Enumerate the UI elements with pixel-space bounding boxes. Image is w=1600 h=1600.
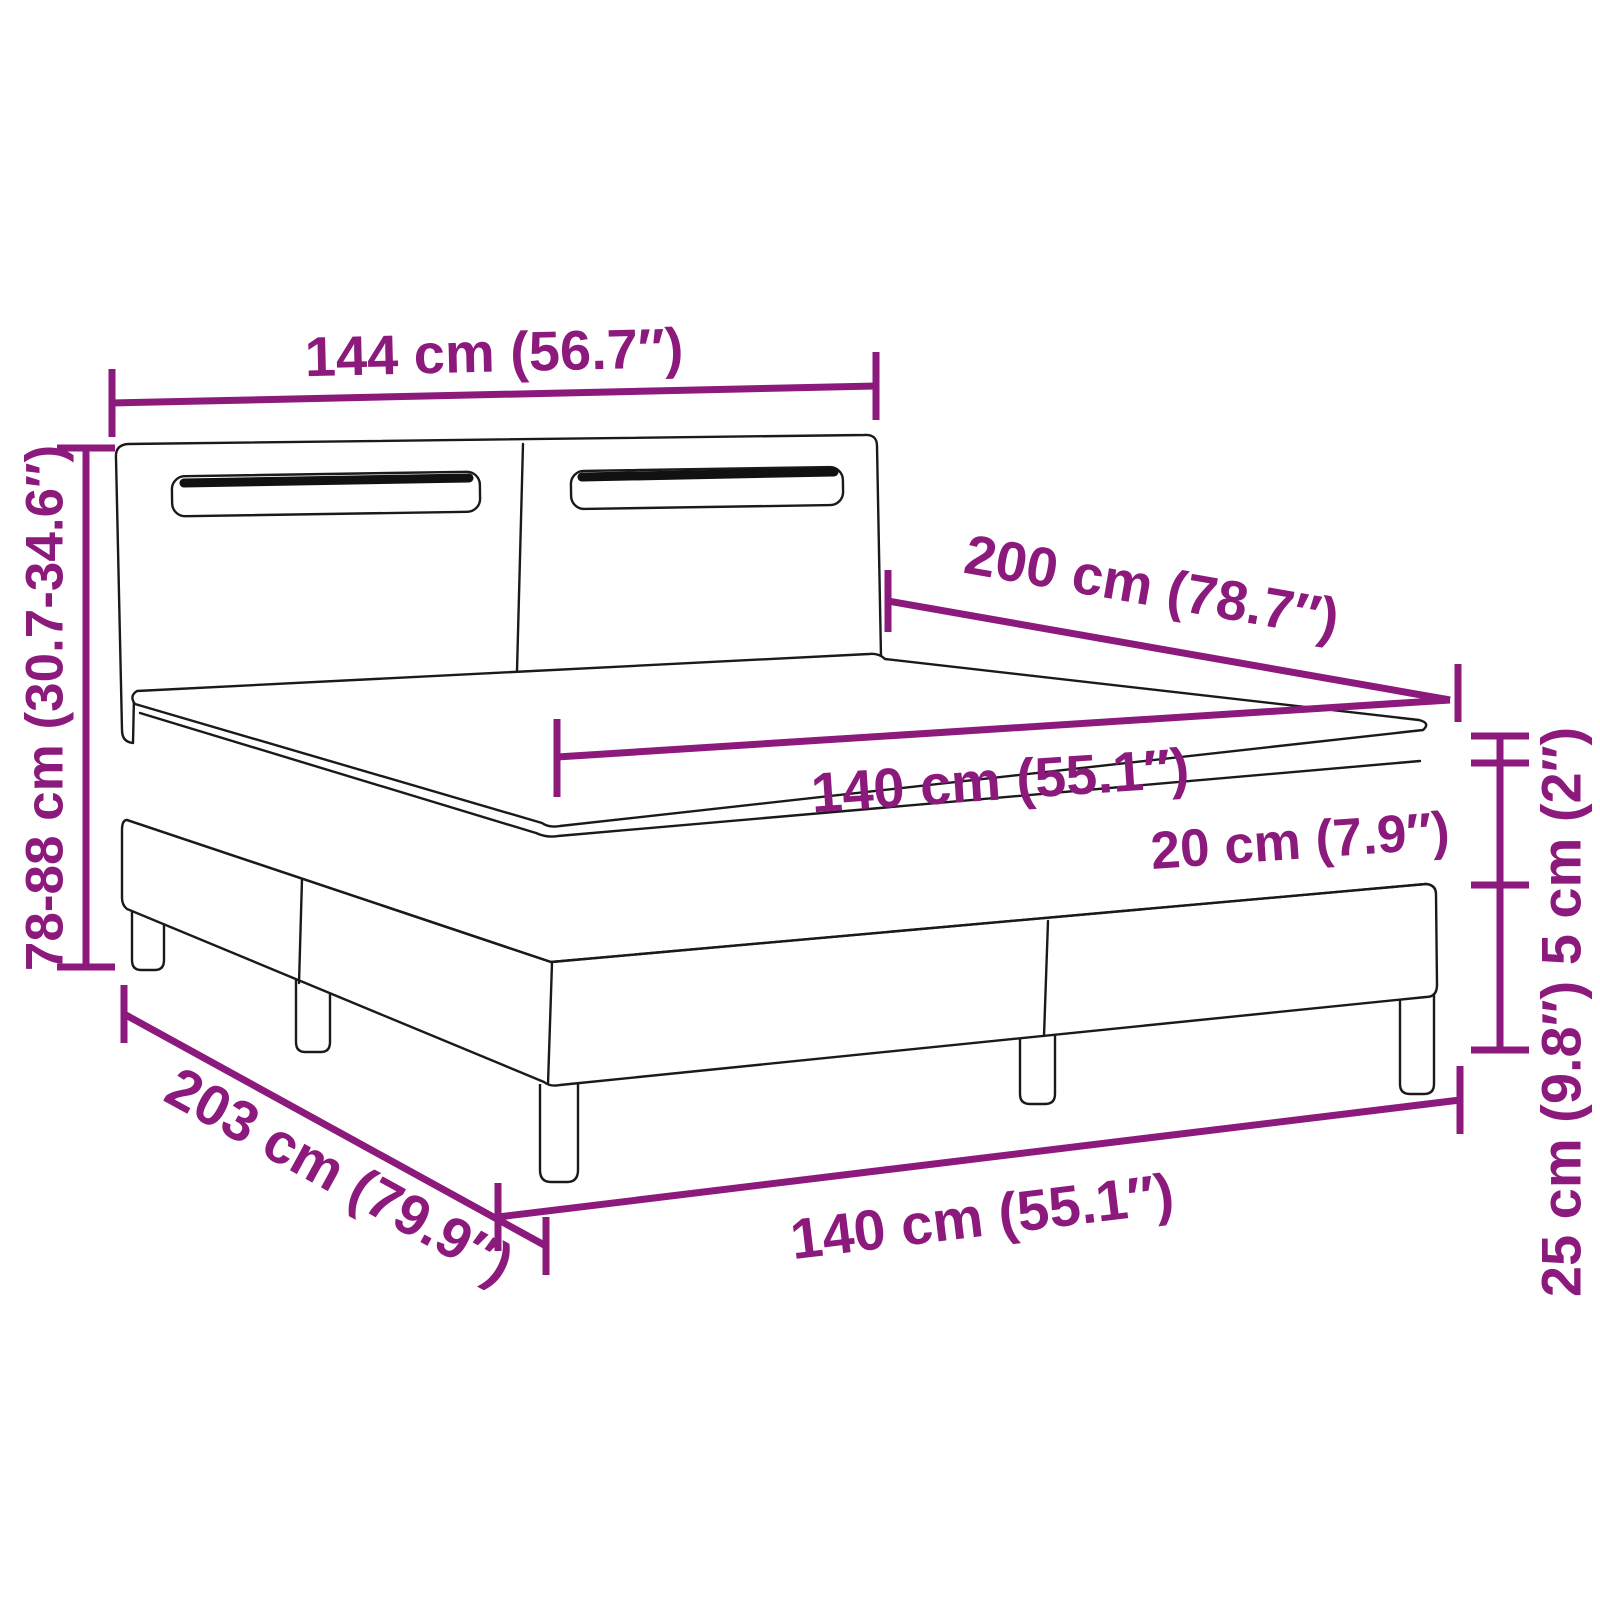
led-strip-right (582, 472, 834, 477)
dim-headboard-width: 144 cm (56.7″) (112, 316, 876, 437)
bed-dimension-diagram: 144 cm (56.7″) 78-88 cm (30.7-34.6″) 200… (0, 0, 1600, 1600)
dim-label-base-width: 140 cm (55.1″) (787, 1162, 1177, 1272)
led-slot-right (571, 467, 844, 509)
dim-headboard-height: 78-88 cm (30.7-34.6″) (16, 445, 115, 971)
led-strip-left (184, 478, 469, 483)
bed-leg-near-corner (540, 1084, 578, 1182)
bed-leg-foot-middle (1020, 1032, 1055, 1104)
diagram-canvas: 144 cm (56.7″) 78-88 cm (30.7-34.6″) 200… (0, 0, 1600, 1600)
dim-label-mattress-height: 20 cm (7.9″) (1149, 801, 1452, 881)
bed-leg-foot-right (1400, 994, 1434, 1094)
dim-label-base-length: 203 cm (79.9″) (155, 1055, 524, 1297)
dim-mattress-height: 20 cm (7.9″) (1149, 801, 1452, 881)
dim-label-headboard-width: 144 cm (56.7″) (304, 316, 684, 388)
bed-drawing (116, 435, 1437, 1182)
dim-label-headboard-height: 78-88 cm (30.7-34.6″) (16, 445, 75, 971)
led-slot-left (172, 472, 481, 517)
dim-label-right-heights: 25 cm (9.8″) 5 cm (2″) (1530, 727, 1593, 1297)
dim-line (112, 386, 876, 403)
dim-right-heights: 25 cm (9.8″) 5 cm (2″) (1471, 727, 1593, 1297)
dim-label-bed-length: 200 cm (78.7″) (960, 522, 1344, 650)
dim-base-width: 140 cm (55.1″) (498, 1066, 1460, 1272)
